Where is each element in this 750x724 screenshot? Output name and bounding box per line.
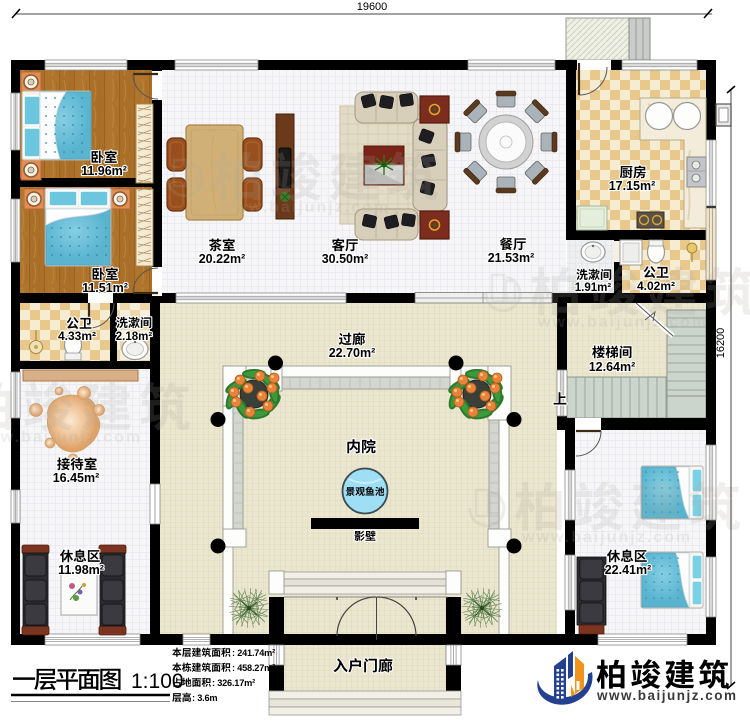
svg-text:16200: 16200 xyxy=(715,328,727,359)
svg-text:20.22m²: 20.22m² xyxy=(199,252,246,266)
svg-text:www.baijunjz.com: www.baijunjz.com xyxy=(0,429,142,446)
svg-text:11.96m²: 11.96m² xyxy=(81,164,127,178)
svg-text:4.02m²: 4.02m² xyxy=(637,279,675,293)
svg-text:: 326.17m²: : 326.17m² xyxy=(212,678,255,688)
svg-text:12.64m²: 12.64m² xyxy=(589,360,636,374)
svg-text:www.baijunjz.com: www.baijunjz.com xyxy=(521,529,692,546)
svg-text:4.33m²: 4.33m² xyxy=(58,329,96,343)
svg-text:www.baijunjz.com: www.baijunjz.com xyxy=(219,199,390,216)
svg-text:www.baijunjz.com: www.baijunjz.com xyxy=(596,688,738,703)
svg-text:2.18m²: 2.18m² xyxy=(116,331,153,343)
svg-text:www.baijunjz.com: www.baijunjz.com xyxy=(537,314,708,331)
svg-text:19600: 19600 xyxy=(357,1,388,13)
svg-text:1.91m²: 1.91m² xyxy=(575,282,612,294)
svg-text:30.50m²: 30.50m² xyxy=(322,252,369,266)
svg-text:22.70m²: 22.70m² xyxy=(329,346,376,360)
svg-text:11.51m²: 11.51m² xyxy=(82,281,128,295)
svg-text:: 458.27m²: : 458.27m² xyxy=(232,663,275,673)
svg-text:11.98m²: 11.98m² xyxy=(58,563,104,577)
svg-text:22.41m²: 22.41m² xyxy=(605,563,652,577)
svg-text:17.15m²: 17.15m² xyxy=(609,179,656,193)
svg-text:21.53m²: 21.53m² xyxy=(488,251,535,265)
svg-text:: 241.74m²: : 241.74m² xyxy=(232,648,275,658)
svg-text:: 3.6m: : 3.6m xyxy=(192,693,217,703)
svg-text:16.45m²: 16.45m² xyxy=(53,471,100,485)
svg-text:1:100: 1:100 xyxy=(131,670,184,693)
